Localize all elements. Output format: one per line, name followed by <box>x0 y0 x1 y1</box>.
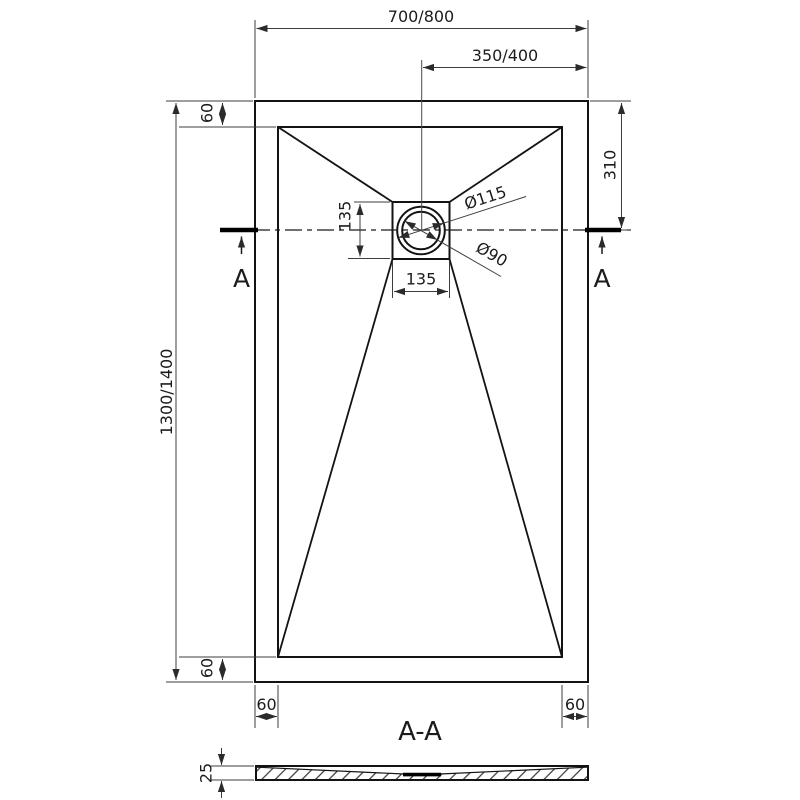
drawing-canvas: A A <box>0 0 800 800</box>
dim-label-border-top: 60 <box>198 103 217 123</box>
slope-line-bottom-right <box>450 259 563 657</box>
shower-tray-technical-drawing: A A <box>0 0 800 800</box>
dim-label-overall-width: 700/800 <box>388 7 454 26</box>
section-title: A-A <box>398 717 442 747</box>
dim-label-thickness: 25 <box>197 763 216 783</box>
cut-label-right: A <box>593 264 610 293</box>
slope-line-top-left <box>278 127 393 202</box>
dim-label-hole-diameter: Ø90 <box>473 238 511 271</box>
dim-label-border-bottom: 60 <box>198 658 217 678</box>
dim-label-drain-square-height: 135 <box>336 201 355 232</box>
slope-line-top-right <box>450 127 563 202</box>
dim-label-border-left: 60 <box>256 695 276 714</box>
cut-label-left: A <box>233 264 250 293</box>
dim-label-drain-offset: 310 <box>601 150 620 181</box>
dimension-labels: 700/800 350/400 310 1300/1400 60 60 60 6… <box>157 7 620 714</box>
section-view: A-A 25 <box>197 717 589 798</box>
dim-line-hole-diameter <box>405 221 438 240</box>
slope-line-bottom-left <box>278 259 393 657</box>
centerlines <box>221 60 631 231</box>
dim-label-border-right: 60 <box>565 695 585 714</box>
dim-label-half-width: 350/400 <box>472 46 538 65</box>
dim-label-flange-diameter: Ø115 <box>462 182 509 213</box>
dim-label-overall-height: 1300/1400 <box>157 349 176 436</box>
dim-label-drain-square-width: 135 <box>406 270 437 289</box>
